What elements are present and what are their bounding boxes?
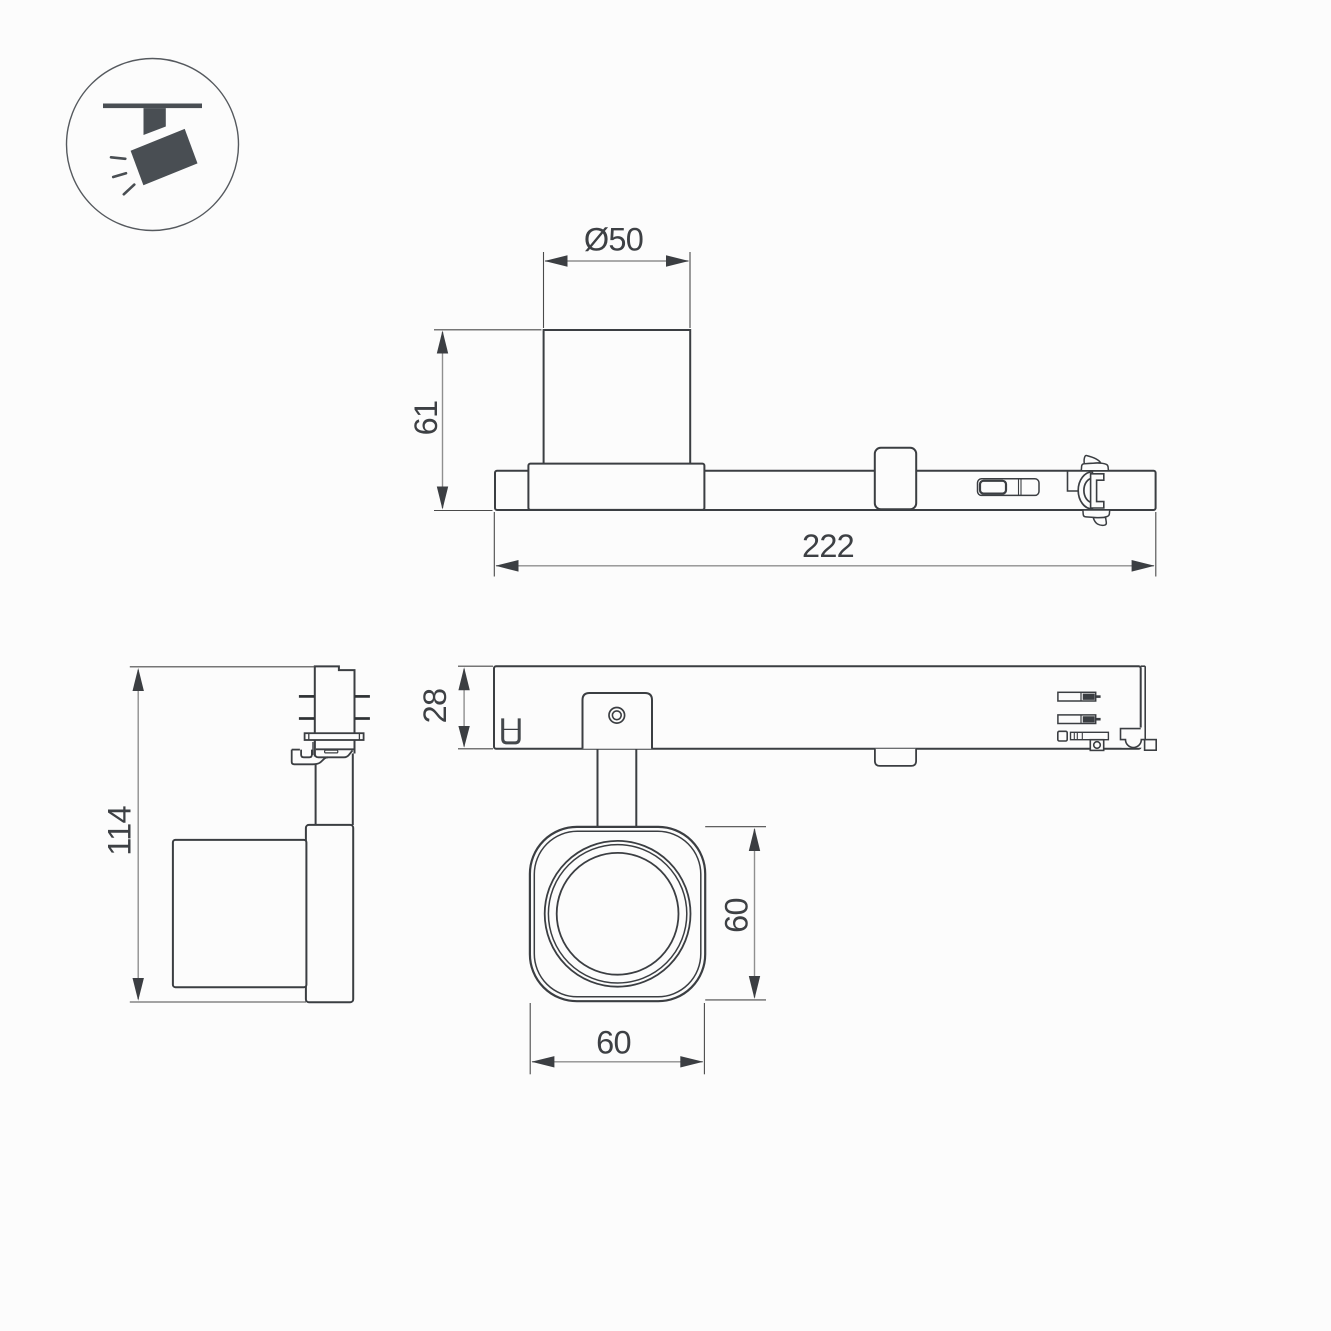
svg-text:60: 60 [719,898,755,933]
svg-text:61: 61 [408,401,444,436]
svg-text:222: 222 [802,528,854,564]
svg-text:28: 28 [417,689,453,724]
svg-text:114: 114 [102,806,138,856]
svg-text:Ø50: Ø50 [584,222,643,258]
svg-text:60: 60 [596,1024,631,1060]
